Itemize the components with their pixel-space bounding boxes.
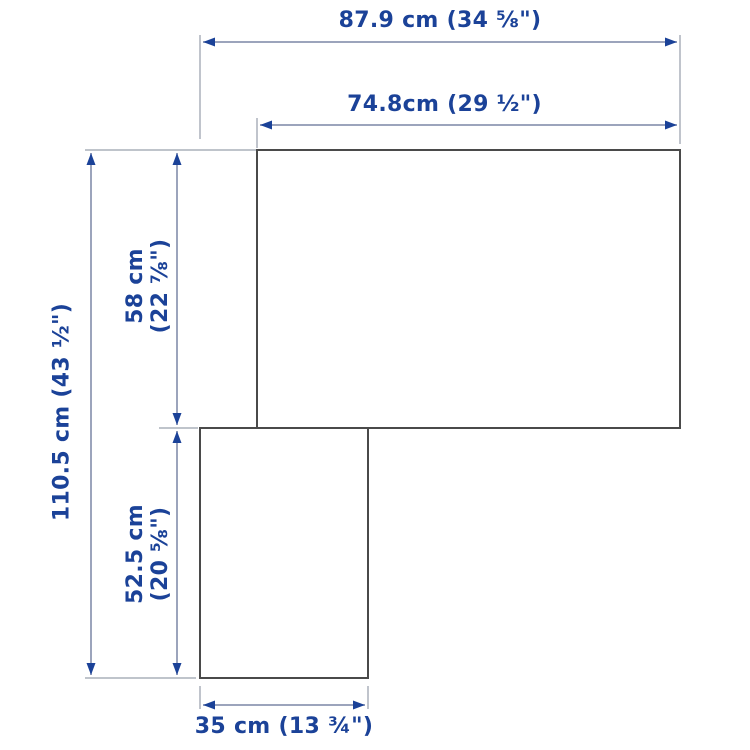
total-width-label: 87.9 cm (34 ⅝") [200, 8, 680, 34]
lower-section-outline [200, 428, 368, 678]
upper-section-outline [257, 150, 680, 428]
upper-height-label: 58 cm (22 ⅞") [123, 239, 173, 334]
upper-height-label-inches: (22 ⅞") [148, 239, 173, 334]
upper-height-label-cm: 58 cm [123, 239, 148, 334]
bottom-width-label: 35 cm (13 ¾") [134, 714, 434, 740]
lower-height-label: 52.5 cm (20 ⅝") [123, 504, 173, 604]
upper-width-label: 74.8cm (29 ½") [233, 92, 656, 118]
lower-height-label-inches: (20 ⅝") [148, 504, 173, 604]
dimension-diagram: 87.9 cm (34 ⅝") 74.8cm (29 ½") 110.5 cm … [0, 0, 750, 750]
total-height-label: 110.5 cm (43 ½") [50, 303, 75, 521]
lower-height-label-cm: 52.5 cm [123, 504, 148, 604]
